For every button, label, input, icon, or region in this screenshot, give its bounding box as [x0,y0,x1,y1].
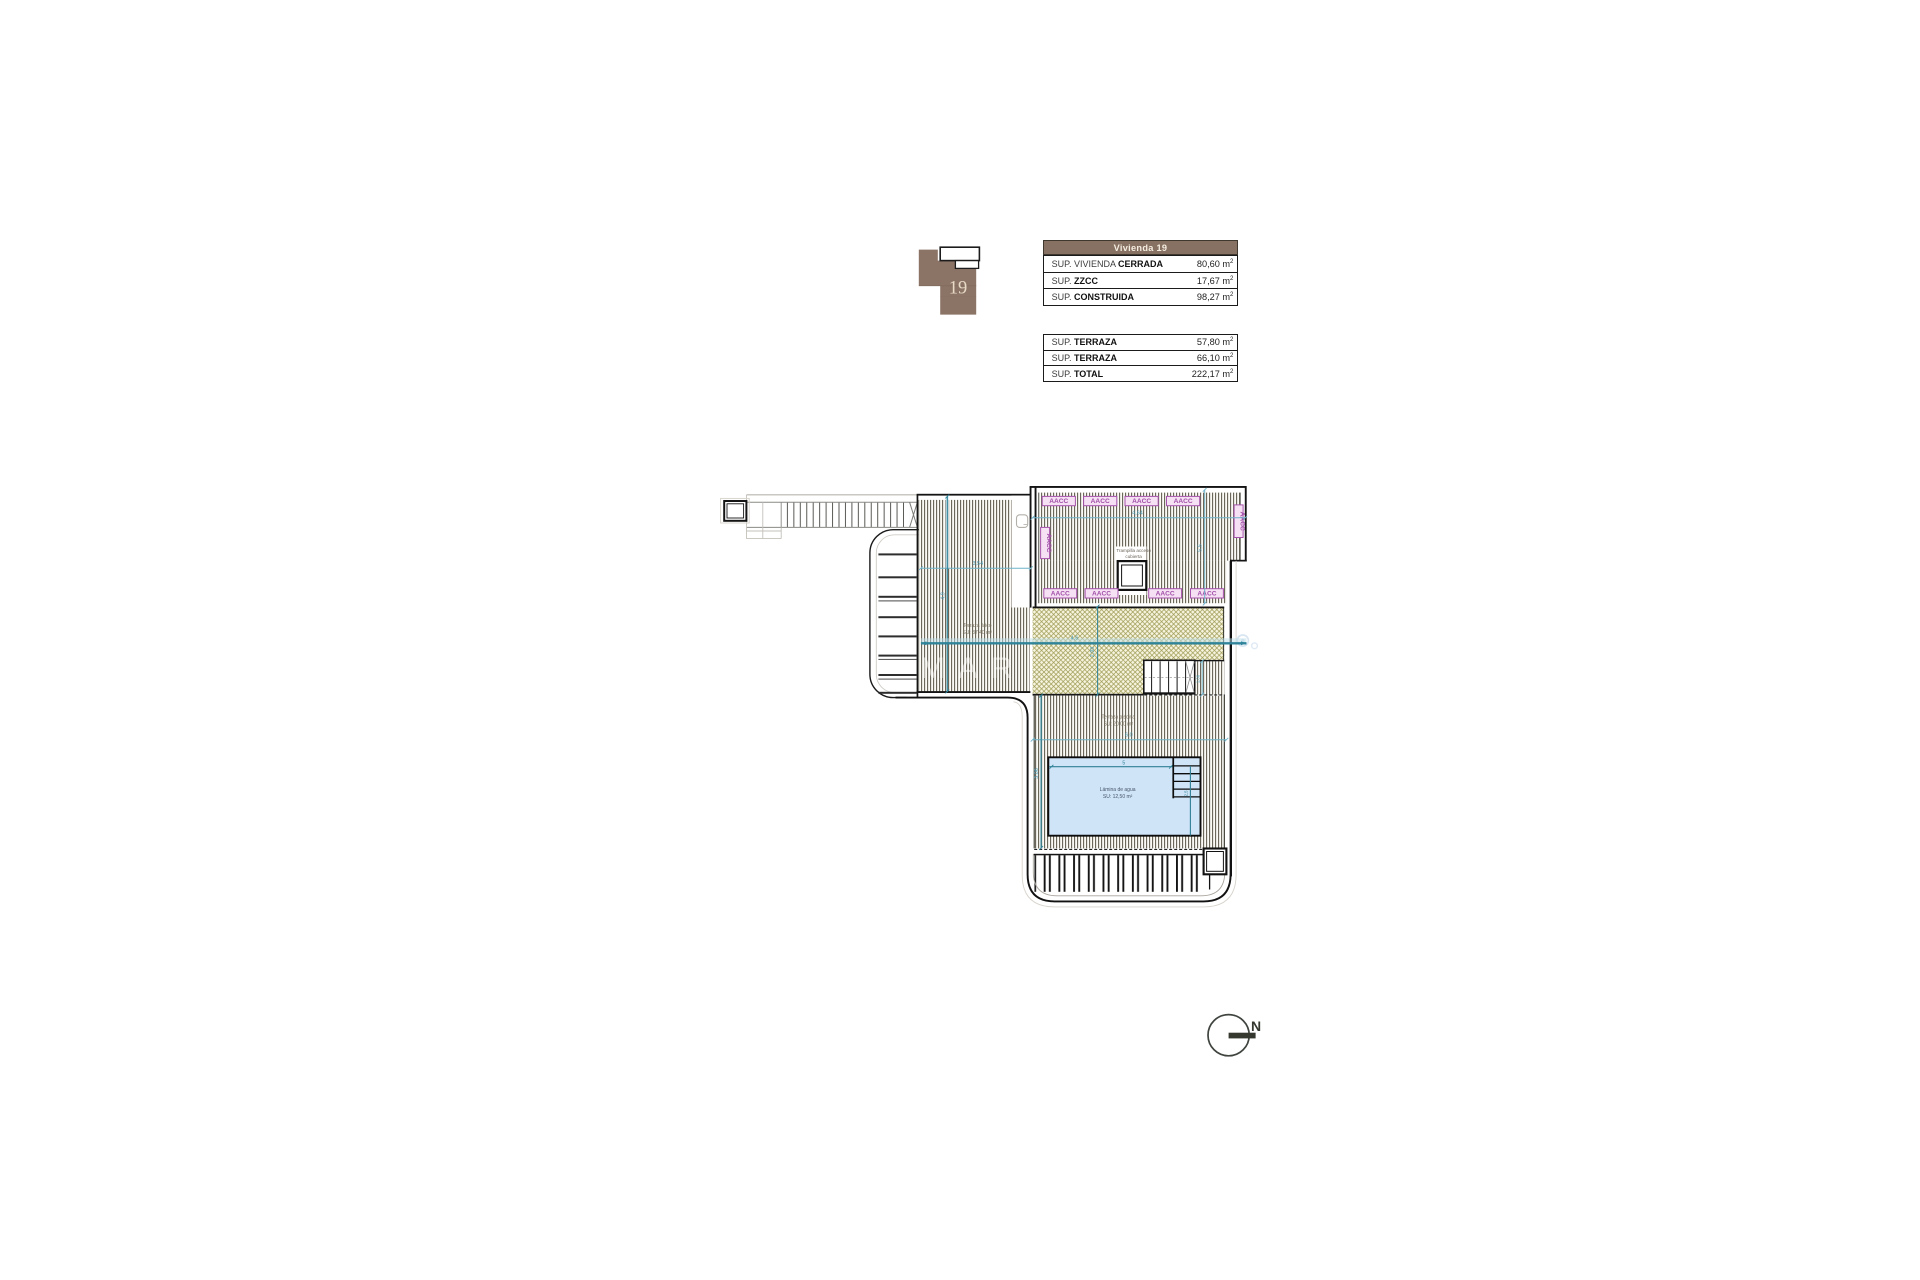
svg-text:AACC: AACC [1174,498,1193,505]
svg-text:Terraza piscina: Terraza piscina [1101,714,1135,720]
svg-text:AACC: AACC [1239,512,1246,531]
svg-text:Lámina de agua: Lámina de agua [1100,787,1136,793]
svg-text:A: A [716,678,735,709]
svg-text:4,6: 4,6 [1071,636,1079,642]
svg-text:Trampilla acceso: Trampilla acceso [1116,548,1151,553]
svg-text:AACC: AACC [1051,590,1070,597]
svg-text:AACC: AACC [1132,498,1151,505]
svg-text:2,5: 2,5 [1184,790,1189,796]
svg-text:1,06: 1,06 [1195,674,1200,683]
svg-text:cubierta: cubierta [1125,554,1142,559]
svg-text:19: 19 [949,279,968,299]
svg-text:SU: 12,50 m²: SU: 12,50 m² [1103,794,1133,800]
svg-text:5,5: 5,5 [1198,544,1204,552]
svg-text:SU: 20,00 m²: SU: 20,00 m² [1104,721,1134,727]
svg-text:3,54: 3,54 [972,561,983,567]
svg-text:4,9: 4,9 [940,592,946,600]
svg-text:3,06: 3,06 [1034,768,1040,779]
svg-text:MAR: MAR [920,652,1026,685]
svg-text:AACC: AACC [1049,498,1068,505]
svg-text:4,64: 4,64 [1132,511,1143,517]
svg-text:AACC: AACC [1045,533,1052,552]
svg-text:6,0: 6,0 [1125,733,1133,739]
svg-text:5: 5 [1122,761,1125,767]
svg-text:N: N [1251,1018,1261,1034]
svg-text:SU: 37,40 m²: SU: 37,40 m² [962,630,992,636]
svg-text:2,98: 2,98 [1090,647,1096,658]
svg-text:AACC: AACC [1156,590,1175,597]
svg-text:AACC: AACC [1197,590,1216,597]
svg-text:AACC: AACC [1092,590,1111,597]
svg-text:AACC: AACC [1091,498,1110,505]
svg-text:Terraza ático: Terraza ático [963,623,992,629]
